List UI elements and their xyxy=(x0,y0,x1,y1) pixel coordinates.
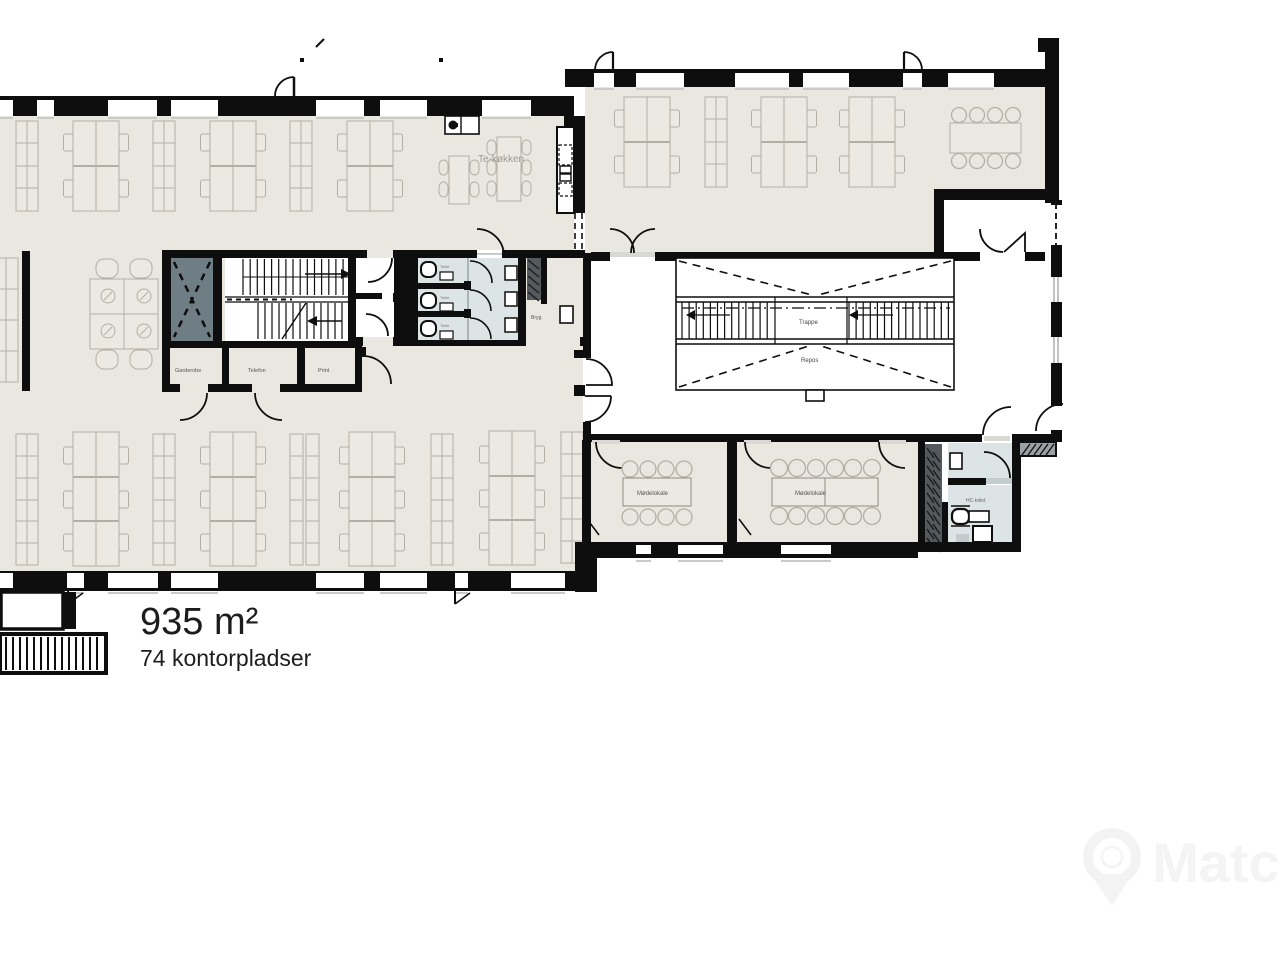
svg-text:Print: Print xyxy=(318,368,330,374)
svg-text:Repos: Repos xyxy=(801,358,818,364)
svg-text:Mødelokale: Mødelokale xyxy=(637,491,669,497)
svg-text:MatchOffice: MatchOffice xyxy=(1152,831,1280,894)
svg-text:HC-toilet: HC-toilet xyxy=(966,498,986,504)
svg-text:Te-køkken: Te-køkken xyxy=(478,154,524,165)
svg-text:Telefon: Telefon xyxy=(248,368,266,374)
svg-text:Garderobe: Garderobe xyxy=(175,368,201,374)
svg-text:Toilet: Toilet xyxy=(440,323,450,328)
svg-text:935 m²: 935 m² xyxy=(140,601,258,643)
svg-text:Mødelokale: Mødelokale xyxy=(795,491,827,497)
svg-text:74 kontorpladser: 74 kontorpladser xyxy=(140,645,312,671)
svg-text:Toilet: Toilet xyxy=(440,295,450,300)
svg-text:Trappe: Trappe xyxy=(799,320,818,326)
svg-text:Bryg.: Bryg. xyxy=(531,315,543,321)
svg-text:Toilet: Toilet xyxy=(440,264,450,269)
